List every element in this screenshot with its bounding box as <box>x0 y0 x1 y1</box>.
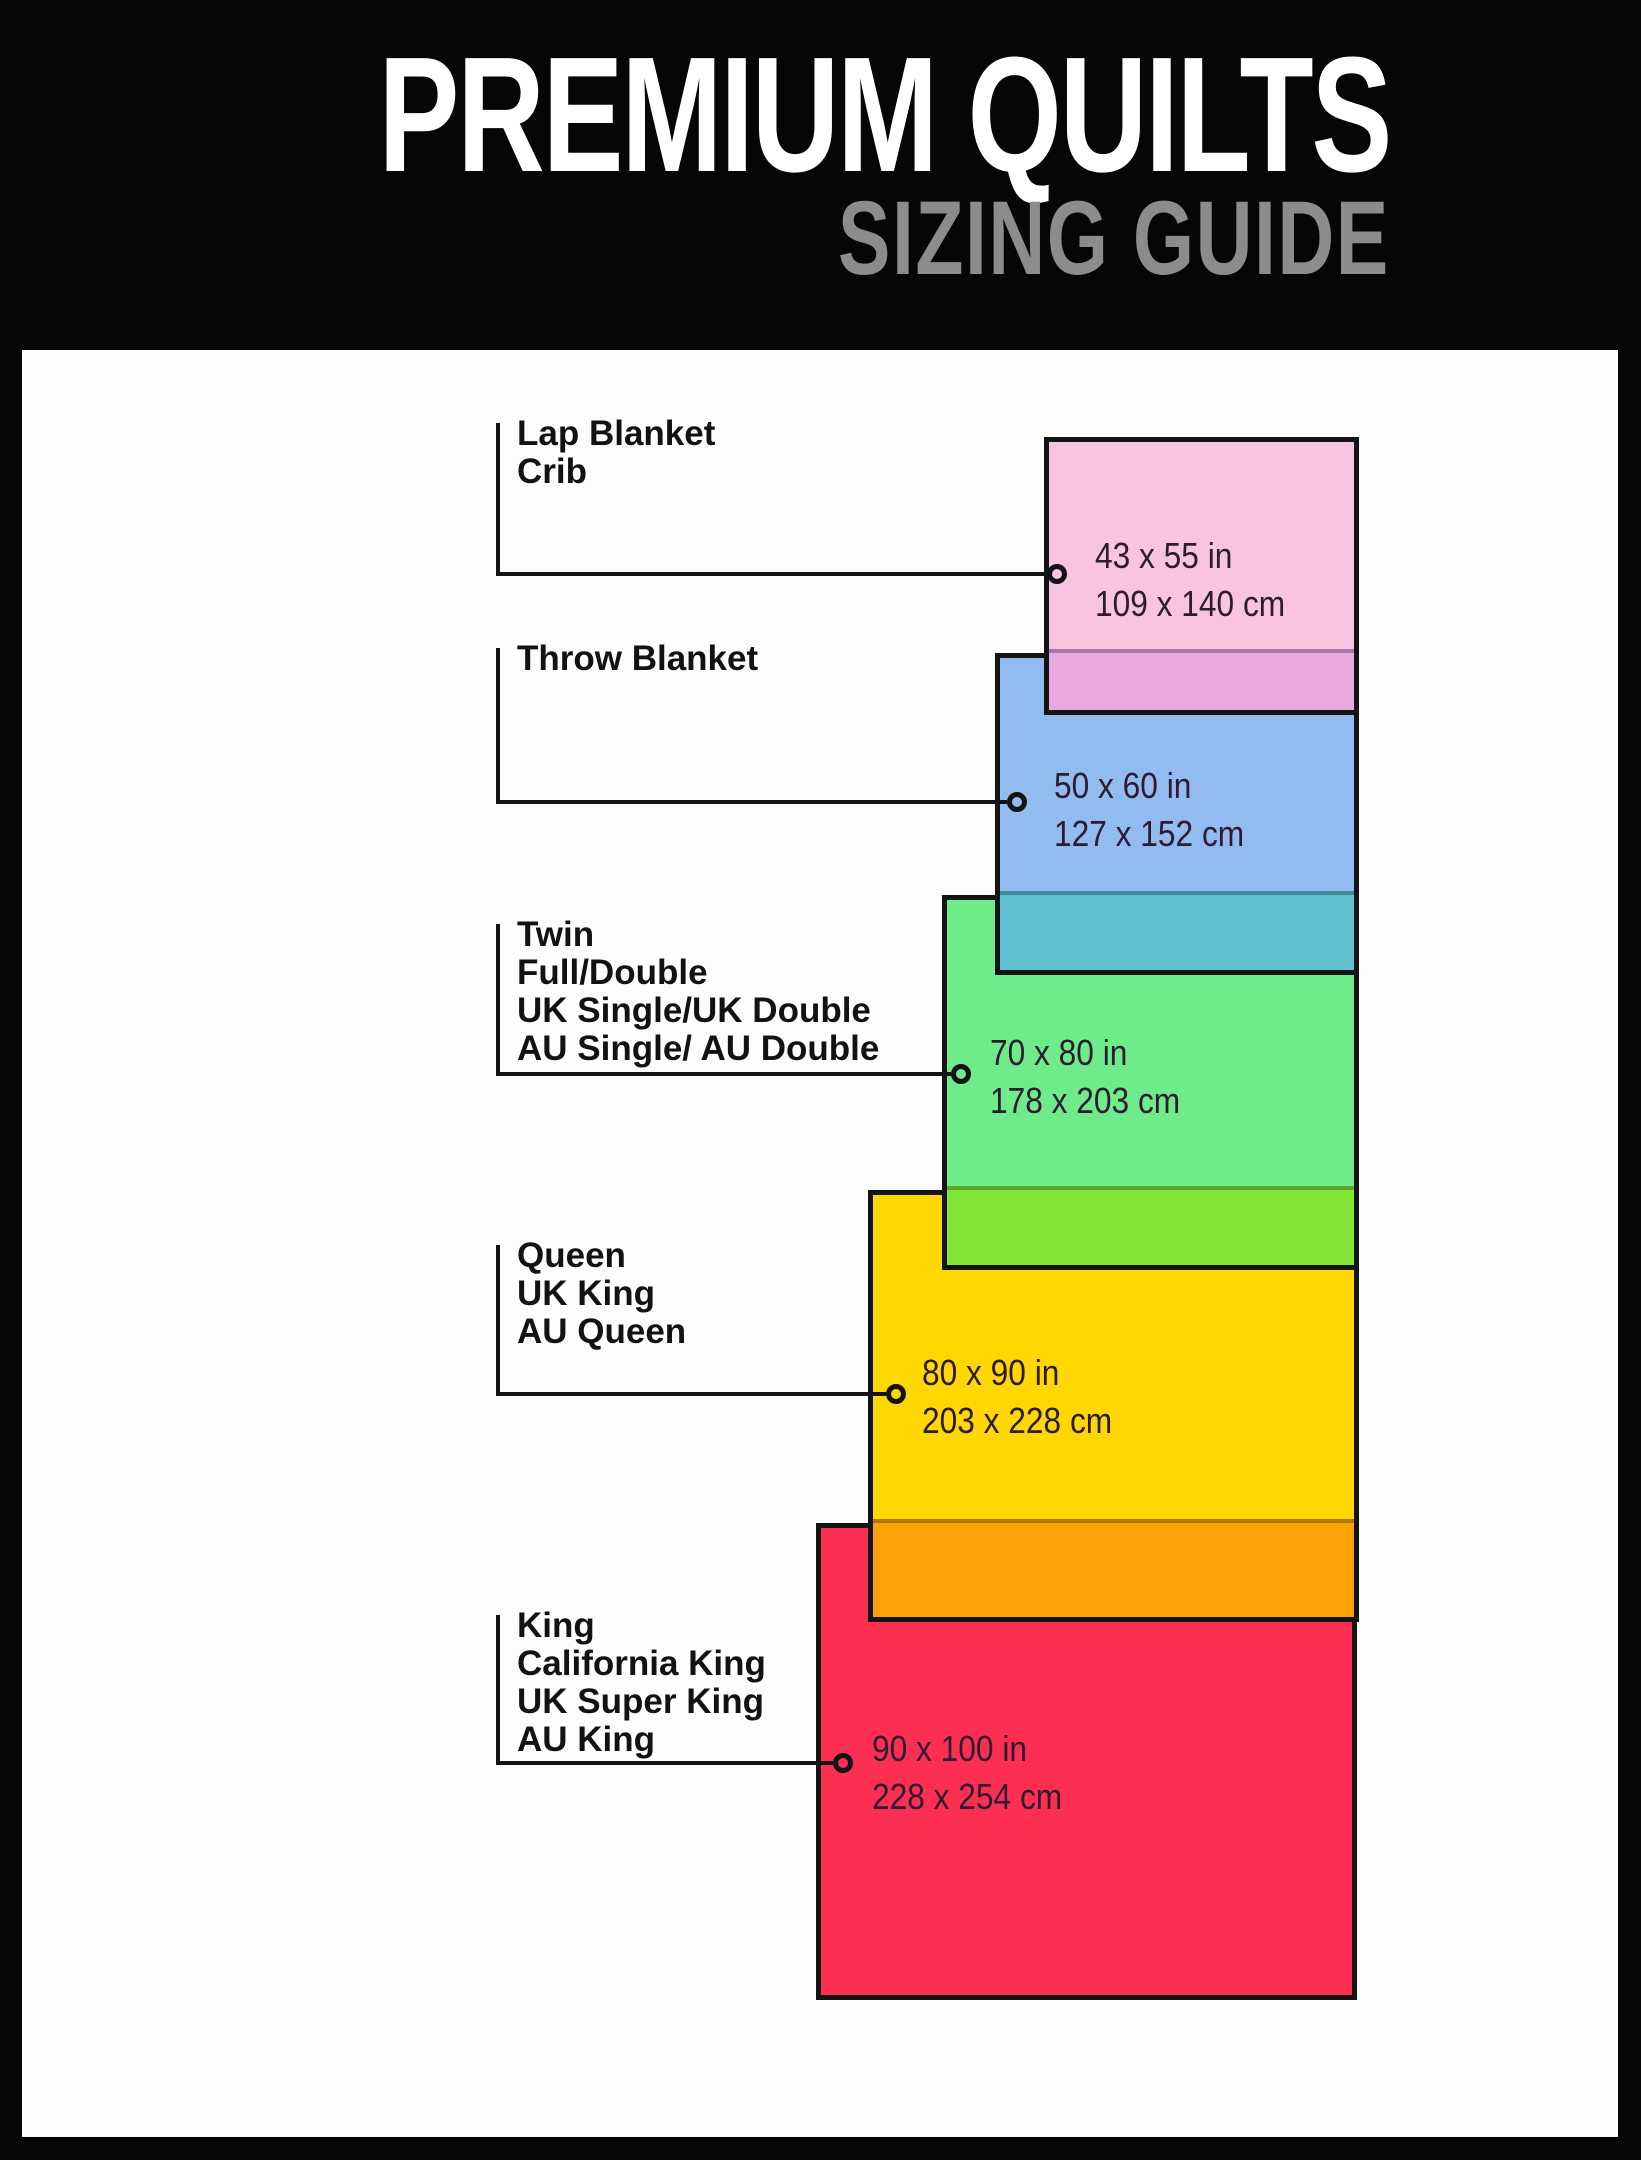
overlap-band-throw-twin <box>1000 891 1354 970</box>
leader-dot-throw-blanket <box>1007 792 1027 812</box>
leader-dot-king <box>833 1753 853 1773</box>
page-subtitle: SIZING GUIDE <box>838 186 1390 291</box>
size-name-line: King <box>517 1607 766 1645</box>
dimensions-inches: 70 x 80 in <box>990 1029 1180 1077</box>
size-name-line: Crib <box>517 453 715 491</box>
size-name-line: UK King <box>517 1275 686 1313</box>
size-names-twin: Twin Full/Double UK Single/UK Double AU … <box>517 916 879 1068</box>
overlap-band-queen-king <box>873 1519 1354 1617</box>
dimensions-inches: 80 x 90 in <box>922 1349 1112 1397</box>
page-title: PREMIUM QUILTS <box>378 33 1390 197</box>
size-name-line: AU King <box>517 1721 766 1759</box>
dimensions-inches: 90 x 100 in <box>872 1725 1062 1773</box>
dimensions-cm: 203 x 228 cm <box>922 1397 1112 1445</box>
size-names-lap-blanket: Lap Blanket Crib <box>517 415 715 491</box>
size-names-throw-blanket: Throw Blanket <box>517 640 758 678</box>
size-name-line: AU Queen <box>517 1313 686 1351</box>
dimensions-twin: 70 x 80 in 178 x 203 cm <box>990 1029 1180 1125</box>
dimensions-cm: 228 x 254 cm <box>872 1773 1062 1821</box>
sizing-guide-page: PREMIUM QUILTS SIZING GUIDE 43 x 55 in 1… <box>0 0 1641 2160</box>
dimensions-throw-blanket: 50 x 60 in 127 x 152 cm <box>1054 762 1244 858</box>
dimensions-king: 90 x 100 in 228 x 254 cm <box>872 1725 1062 1821</box>
size-name-line: California King <box>517 1645 766 1683</box>
leader-dot-queen <box>886 1384 906 1404</box>
size-names-king: King California King UK Super King AU Ki… <box>517 1607 766 1759</box>
leader-dot-twin <box>951 1064 971 1084</box>
leader-vline-throw-blanket <box>496 648 500 804</box>
leader-hline-king <box>498 1761 833 1765</box>
leader-dot-lap-blanket <box>1047 564 1067 584</box>
leader-hline-queen <box>498 1392 886 1396</box>
leader-hline-twin <box>498 1072 951 1076</box>
leader-vline-lap-blanket <box>496 423 500 576</box>
leader-vline-king <box>496 1615 500 1765</box>
leader-vline-twin <box>496 924 500 1076</box>
leader-hline-lap-blanket <box>498 572 1047 576</box>
dimensions-inches: 43 x 55 in <box>1095 532 1285 580</box>
dimensions-cm: 127 x 152 cm <box>1054 810 1244 858</box>
overlap-band-twin-queen <box>947 1186 1354 1265</box>
size-name-line: UK Super King <box>517 1683 766 1721</box>
size-name-line: Queen <box>517 1237 686 1275</box>
dimensions-cm: 109 x 140 cm <box>1095 580 1285 628</box>
size-name-line: Full/Double <box>517 954 879 992</box>
size-name-line: AU Single/ AU Double <box>517 1030 879 1068</box>
size-name-line: Twin <box>517 916 879 954</box>
dimensions-lap-blanket: 43 x 55 in 109 x 140 cm <box>1095 532 1285 628</box>
size-name-line: UK Single/UK Double <box>517 992 879 1030</box>
dimensions-cm: 178 x 203 cm <box>990 1077 1180 1125</box>
dimensions-inches: 50 x 60 in <box>1054 762 1244 810</box>
size-name-line: Throw Blanket <box>517 640 758 678</box>
dimensions-queen: 80 x 90 in 203 x 228 cm <box>922 1349 1112 1445</box>
size-names-queen: Queen UK King AU Queen <box>517 1237 686 1351</box>
leader-hline-throw-blanket <box>498 800 1007 804</box>
leader-vline-queen <box>496 1245 500 1396</box>
size-name-line: Lap Blanket <box>517 415 715 453</box>
overlap-band-lap-throw <box>1049 649 1354 710</box>
